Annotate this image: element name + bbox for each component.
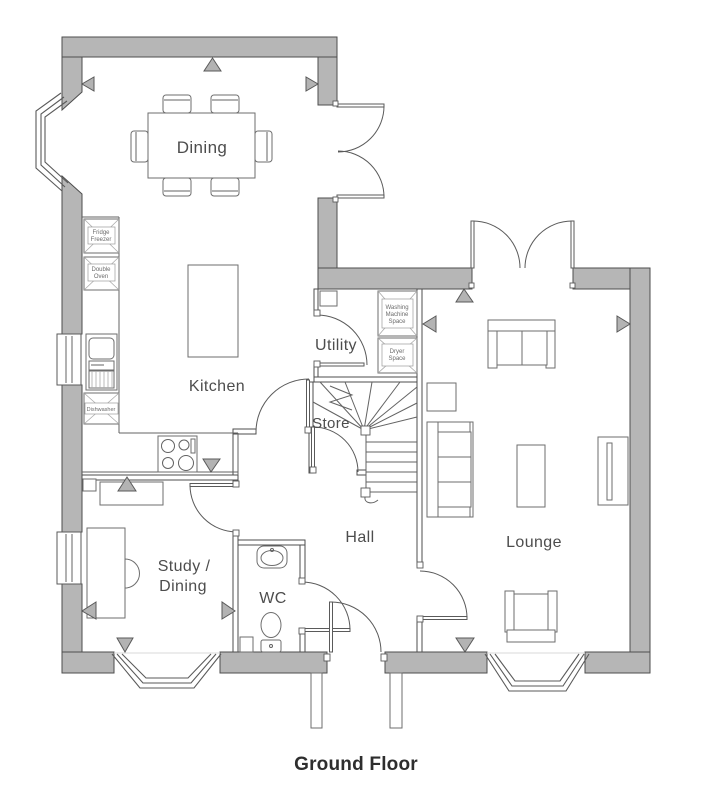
- plan-title: Ground Floor: [294, 754, 418, 775]
- lounge-armchair: [505, 591, 557, 642]
- wall-kitchen-study: [82, 475, 238, 480]
- wall-utility-south: [314, 377, 421, 382]
- dishwasher-label: Dishwasher: [87, 407, 116, 413]
- wc-toilet: [261, 613, 281, 653]
- wall-bottom-a: [62, 652, 114, 673]
- wall-hall-lounge-upper: [417, 289, 422, 566]
- fridge-freezer-unit: [84, 219, 119, 253]
- tv-unit: [598, 437, 628, 505]
- room-label-kitchen: Kitchen: [189, 378, 245, 395]
- wall-right: [630, 268, 650, 673]
- tv-screen: [607, 443, 612, 500]
- kitchen-fittings: [82, 217, 238, 475]
- oven-label-line2: Oven: [94, 274, 108, 280]
- room-label-study-line1: Study /: [158, 558, 211, 575]
- oven-label-line1: Double: [91, 267, 111, 273]
- room-label-dining: Dining: [177, 138, 228, 157]
- marker-lounge-right: [617, 316, 630, 332]
- floorplan-page: Dining Kitchen Utility Store Hall WC Stu…: [0, 0, 718, 802]
- dining-chair: [163, 95, 191, 113]
- lounge-sofa-left: [427, 422, 473, 517]
- front-door: [330, 602, 382, 652]
- marker-lounge-down: [456, 638, 474, 652]
- front-door-jamb-left: [324, 654, 330, 661]
- dining-chair: [131, 131, 148, 162]
- staircase: [313, 382, 417, 503]
- porch-post-left: [311, 673, 322, 728]
- dryer-label-line1: Dryer: [390, 349, 405, 355]
- room-label-wc: WC: [259, 590, 286, 607]
- room-label-hall: Hall: [345, 529, 374, 546]
- ground-floor-plan: Dining Kitchen Utility Store Hall WC Stu…: [0, 0, 718, 802]
- room-label-utility: Utility: [315, 337, 357, 354]
- lounge-bay-window: [485, 653, 589, 691]
- marker-dining-right: [306, 77, 318, 91]
- study-furniture: [83, 479, 163, 618]
- dining-chair: [211, 178, 239, 196]
- dryer-label-line2: Space: [388, 356, 406, 362]
- lounge-sofa-top: [488, 320, 555, 368]
- wc-door: [299, 578, 350, 634]
- study-chair: [125, 559, 140, 588]
- wall-hall-lounge-lower: [417, 618, 422, 652]
- kitchen-hall-door: [256, 379, 311, 433]
- marker-dining-left: [82, 77, 94, 91]
- stair-treads: [366, 442, 417, 492]
- study-radiator: [83, 479, 96, 491]
- fridge-label-line1: Fridge: [92, 230, 110, 236]
- dining-french-doors: [333, 101, 384, 202]
- washing-label-line1: Washing: [385, 305, 408, 311]
- wall-bottom-d: [585, 652, 650, 673]
- wall-hall-study-lower: [233, 533, 238, 652]
- study-door: [190, 481, 239, 536]
- room-label-lounge: Lounge: [506, 534, 562, 551]
- lounge-door: [417, 562, 467, 622]
- room-label-store: Store: [312, 415, 350, 432]
- marker-kitchen-down: [203, 459, 220, 472]
- utility-boiler: [320, 291, 337, 306]
- wall-utility-top: [318, 268, 472, 289]
- kitchen-island: [188, 265, 238, 357]
- marker-study-down: [117, 638, 133, 652]
- sink-unit: [86, 334, 117, 390]
- stair-newel-top: [361, 426, 370, 435]
- wc-basin: [257, 546, 287, 568]
- dining-chair: [211, 95, 239, 113]
- room-labels: Dining Kitchen Utility Store Hall WC Stu…: [158, 138, 562, 607]
- washing-label-line3: Space: [388, 319, 406, 325]
- fridge-label-line2: Freezer: [91, 237, 112, 243]
- stair-newel-bottom: [361, 488, 370, 497]
- wall-left-mid2: [62, 385, 82, 532]
- porch-post-right: [390, 673, 402, 728]
- wc-cabinet: [240, 637, 253, 652]
- lounge-french-doors: [469, 221, 575, 288]
- room-label-study-line2: Dining: [159, 578, 207, 595]
- wall-wc-east-upper: [300, 545, 305, 582]
- side-table: [427, 383, 456, 411]
- store-door: [310, 427, 358, 473]
- interior-walls: [82, 289, 422, 652]
- wall-dining-right-lower: [318, 198, 337, 268]
- front-door-jamb-right: [381, 654, 387, 661]
- coffee-table: [517, 445, 545, 507]
- wall-dining-right-upper: [318, 57, 337, 105]
- wall-top: [62, 37, 337, 57]
- wall-left-mid: [62, 176, 82, 334]
- study-bay-window: [112, 653, 221, 688]
- wall-bottom-c: [385, 652, 487, 673]
- washing-label-line2: Machine: [386, 312, 409, 318]
- hob: [158, 436, 197, 472]
- marker-lounge-up: [456, 289, 473, 302]
- marker-lounge-left: [423, 316, 436, 332]
- wall-bottom-b: [220, 652, 327, 673]
- study-window: [57, 532, 81, 584]
- wall-wc-north: [238, 540, 305, 545]
- marker-dining-up: [204, 58, 221, 71]
- stair-rail-curl: [365, 497, 378, 503]
- dining-chair: [163, 178, 191, 196]
- stair-break-mark: [330, 386, 352, 410]
- kitchen-window: [57, 334, 81, 385]
- lounge-furniture: [427, 320, 628, 642]
- appliance-labels: Fridge Freezer Double Oven Dishwasher Wa…: [87, 230, 409, 413]
- dining-chair: [255, 131, 272, 162]
